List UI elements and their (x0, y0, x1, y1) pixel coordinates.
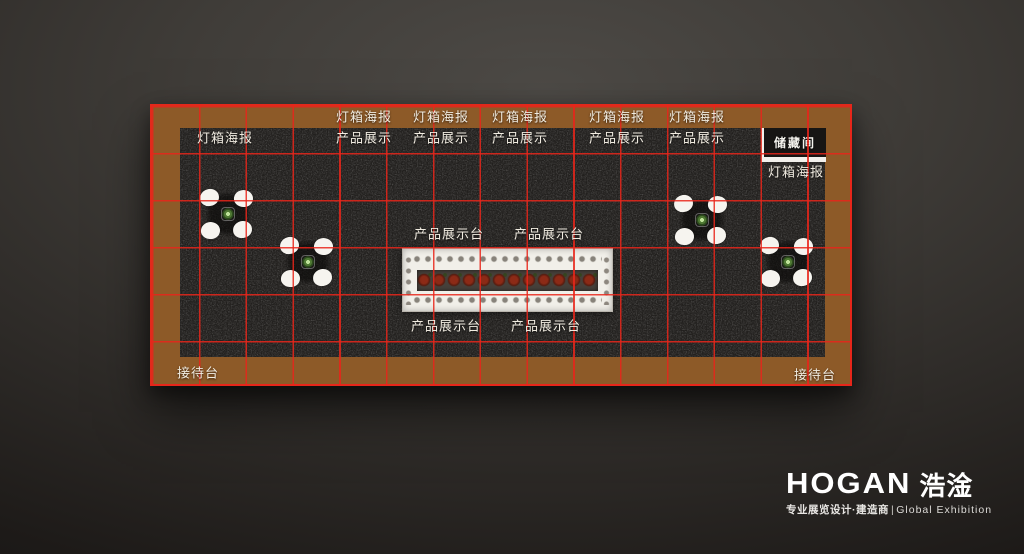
logo-chinese-name: 浩淦 (919, 473, 973, 499)
product-display-label-3: 产品展示 (492, 128, 548, 147)
lightbox-poster-label-right: 灯箱海报 (768, 162, 824, 181)
lightbox-poster-label-top-5: 灯箱海报 (669, 107, 725, 126)
lightbox-poster-label-top-3: 灯箱海报 (492, 107, 548, 126)
lightbox-poster-label-top-1: 灯箱海报 (336, 107, 392, 126)
product-display-label-5: 产品展示 (669, 128, 725, 147)
reception-desk-label-left: 接待台 (177, 363, 219, 382)
tagline-chinese: 专业展览设计·建造商 (786, 504, 889, 516)
display-table-label-bottom-left: 产品展示台 (411, 316, 481, 335)
tagline-divider: | (891, 504, 894, 516)
booth-floor-plan: 储藏间 (150, 104, 852, 386)
lightbox-poster-label-top-2: 灯箱海报 (413, 107, 469, 126)
display-table-label-top-left: 产品展示台 (414, 224, 484, 243)
logo-row: HOGAN 浩淦 (786, 468, 992, 499)
product-display-label-2: 产品展示 (413, 128, 469, 147)
lightbox-poster-label-left: 灯箱海报 (197, 128, 253, 147)
logo-wordmark: HOGAN (786, 469, 911, 498)
render-canvas: 储藏间 (0, 0, 1024, 554)
display-table-label-bottom-right: 产品展示台 (511, 316, 581, 335)
display-table-label-top-right: 产品展示台 (514, 224, 584, 243)
reception-desk-label-right: 接待台 (794, 365, 836, 384)
brand-logo: HOGAN 浩淦 专业展览设计·建造商|Global Exhibition (786, 468, 992, 517)
tagline-english: Global Exhibition (896, 504, 992, 516)
lightbox-poster-label-top-4: 灯箱海报 (589, 107, 645, 126)
product-display-label-1: 产品展示 (336, 128, 392, 147)
product-display-label-4: 产品展示 (589, 128, 645, 147)
logo-tagline: 专业展览设计·建造商|Global Exhibition (786, 502, 992, 517)
